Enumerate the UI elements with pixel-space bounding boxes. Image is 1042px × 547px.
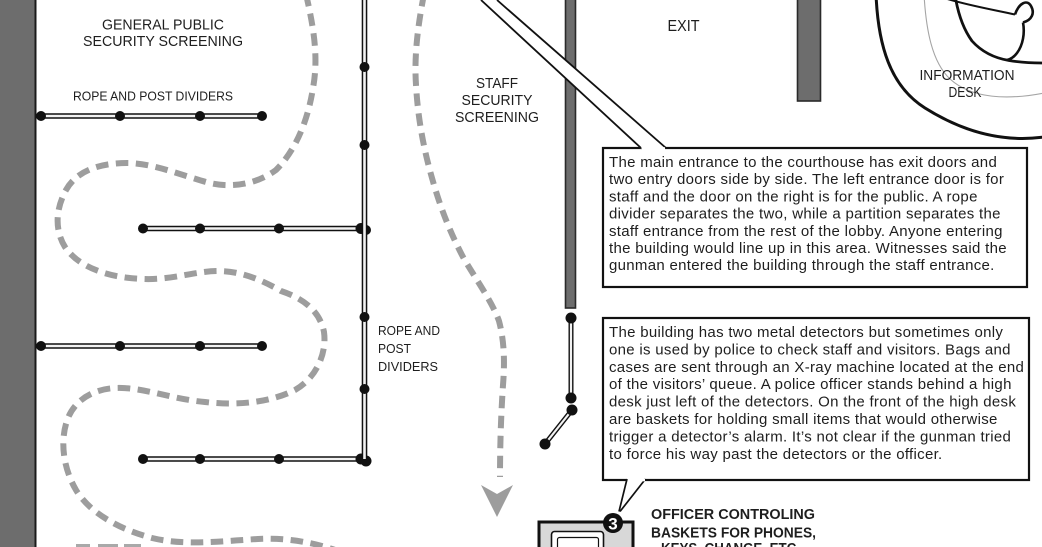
svg-text:cases are sent through an X-ra: cases are sent through an X-ray machine … xyxy=(609,359,1024,376)
svg-text:of the visitors’ queue. A poli: of the visitors’ queue. A police officer… xyxy=(609,376,1012,393)
svg-text:DIVIDERS: DIVIDERS xyxy=(378,359,438,374)
svg-text:EXIT: EXIT xyxy=(668,18,700,35)
svg-text:SCREENING: SCREENING xyxy=(455,110,539,126)
svg-text:POST: POST xyxy=(378,341,411,356)
svg-text:divider separates the two, whi: divider separates the two, while a parti… xyxy=(609,206,1001,223)
svg-text:to force his way past the dete: to force his way past the detectors or t… xyxy=(609,446,943,463)
svg-text:gunman entered the building th: gunman entered the building through the … xyxy=(609,257,995,274)
svg-text:OFFICER CONTROLING: OFFICER CONTROLING xyxy=(651,507,815,523)
svg-text:ROPE AND POST DIVIDERS: ROPE AND POST DIVIDERS xyxy=(73,89,233,104)
svg-text:staff entrance from the rest o: staff entrance from the rest of the lobb… xyxy=(609,223,1003,240)
svg-text:The main entrance to the court: The main entrance to the courthouse has … xyxy=(609,154,997,171)
svg-text:trigger a detector’s alarm. It: trigger a detector’s alarm. It’s not cle… xyxy=(609,428,1011,445)
svg-text:two entry doors side by side.: two entry doors side by side. The left e… xyxy=(609,171,1004,188)
svg-text:3: 3 xyxy=(608,515,617,534)
svg-text:BASKETS FOR PHONES,: BASKETS FOR PHONES, xyxy=(651,526,816,542)
svg-text:ROPE AND: ROPE AND xyxy=(378,323,440,338)
svg-text:are baskets for holding small: are baskets for holding small items that… xyxy=(609,411,998,428)
svg-text:one is used by police to check: one is used by police to check staff and… xyxy=(609,341,1011,358)
svg-text:The building has two metal det: The building has two metal detectors but… xyxy=(609,324,1003,341)
svg-text:DESK: DESK xyxy=(949,85,982,101)
svg-text:GENERAL PUBLIC: GENERAL PUBLIC xyxy=(102,17,224,34)
svg-text:STAFF: STAFF xyxy=(476,76,518,92)
svg-text:desk just left of the detector: desk just left of the detectors. On the … xyxy=(609,394,1016,411)
svg-text:staff and the door on the righ: staff and the door on the right is for t… xyxy=(609,188,978,205)
svg-text:SECURITY SCREENING: SECURITY SCREENING xyxy=(83,33,243,50)
svg-text:KEYS, CHANGE, ETC.: KEYS, CHANGE, ETC. xyxy=(661,541,800,547)
svg-text:INFORMATION: INFORMATION xyxy=(920,68,1015,84)
svg-text:SECURITY: SECURITY xyxy=(462,93,533,109)
svg-text:the building would line up in: the building would line up in this area.… xyxy=(609,240,1007,257)
